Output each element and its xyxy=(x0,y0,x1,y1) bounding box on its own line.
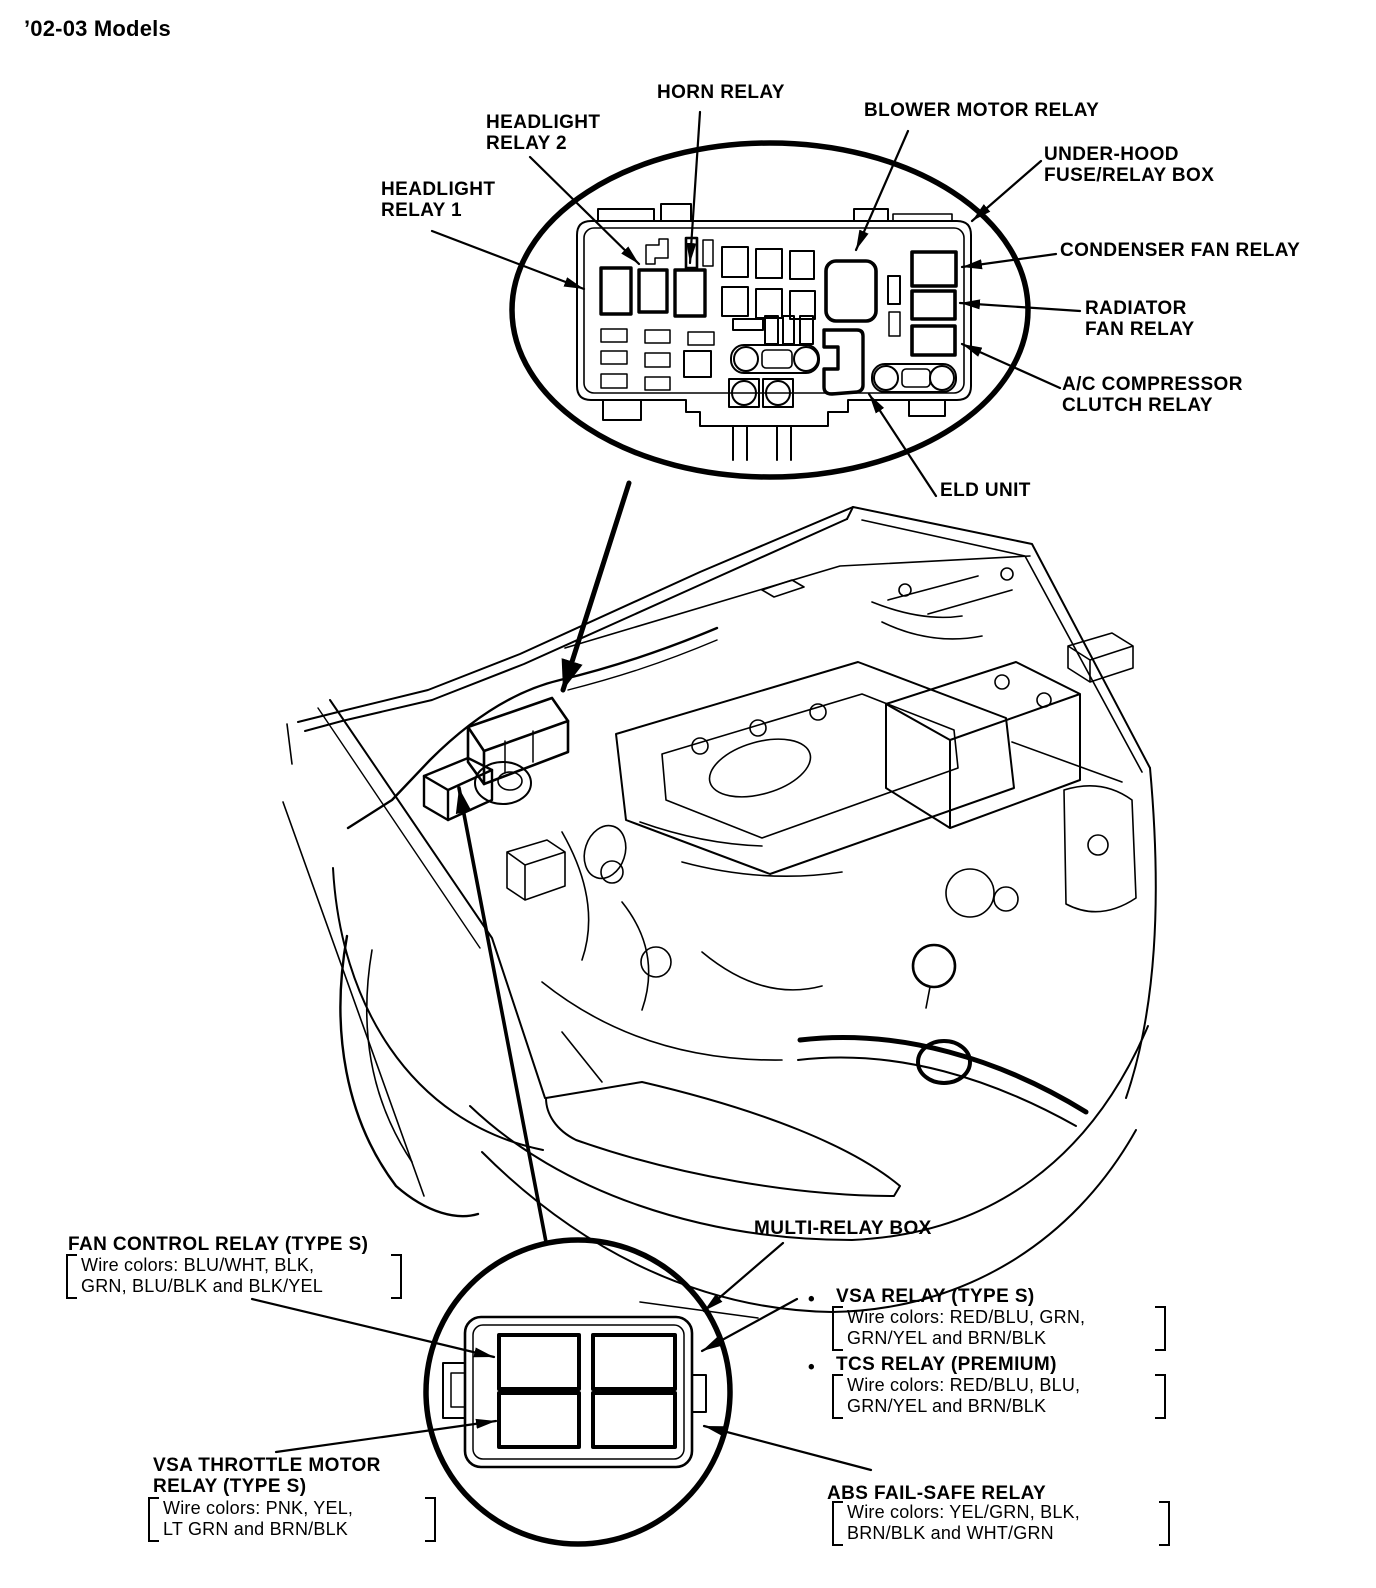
label-vsa-throttle-line1: VSA THROTTLE MOTOR xyxy=(153,1455,381,1476)
label-headlight-relay-2-line1: HEADLIGHT xyxy=(486,112,600,133)
vsa-relay-wire-line2: GRN/YEL and BRN/BLK xyxy=(847,1328,1153,1349)
label-under-hood-fuse-relay-box: UNDER-HOOD FUSE/RELAY BOX xyxy=(1044,144,1214,186)
bracket-right xyxy=(425,1497,436,1542)
label-fan-control-relay: FAN CONTROL RELAY (TYPE S) xyxy=(68,1234,368,1255)
bracket-right xyxy=(1159,1501,1170,1546)
label-under-hood-line2: FUSE/RELAY BOX xyxy=(1044,165,1214,186)
label-headlight-relay-1: HEADLIGHT RELAY 1 xyxy=(381,179,495,221)
label-ac-compressor-clutch-relay: A/C COMPRESSOR CLUTCH RELAY xyxy=(1062,374,1243,416)
vsa-relay-wire-line1: Wire colors: RED/BLU, GRN, xyxy=(847,1307,1153,1328)
vsa-throttle-wire-line2: LT GRN and BRN/BLK xyxy=(163,1519,423,1540)
tcs-relay-bullet: • xyxy=(808,1358,815,1377)
bracket-left xyxy=(832,1306,843,1351)
multi-relay-box-drawing xyxy=(426,1240,730,1544)
label-headlight-relay-2: HEADLIGHT RELAY 2 xyxy=(486,112,600,154)
tcs-relay-wire-line2: GRN/YEL and BRN/BLK xyxy=(847,1396,1153,1417)
label-blower-motor-relay: BLOWER MOTOR RELAY xyxy=(864,100,1099,121)
label-tcs-relay: TCS RELAY (PREMIUM) xyxy=(836,1354,1057,1375)
bracket-right xyxy=(1155,1306,1166,1351)
abs-wire-line1: Wire colors: YEL/GRN, BLK, xyxy=(847,1502,1157,1523)
label-radiator-line2: FAN RELAY xyxy=(1085,319,1195,340)
tcs-relay-wire-line1: Wire colors: RED/BLU, BLU, xyxy=(847,1375,1153,1396)
fuse-box-in-bay xyxy=(468,698,568,784)
label-headlight-relay-1-line2: RELAY 1 xyxy=(381,200,495,221)
abs-wire-line2: BRN/BLK and WHT/GRN xyxy=(847,1523,1157,1544)
label-ac-line1: A/C COMPRESSOR xyxy=(1062,374,1243,395)
bracket-right xyxy=(1155,1374,1166,1419)
under-hood-fuse-box-drawing xyxy=(512,143,1028,477)
bracket-left xyxy=(832,1374,843,1419)
label-ac-line2: CLUTCH RELAY xyxy=(1062,395,1243,416)
fan-control-wire-line1: Wire colors: BLU/WHT, BLK, xyxy=(81,1255,389,1276)
fan-control-wire-line2: GRN, BLU/BLK and BLK/YEL xyxy=(81,1276,389,1297)
label-eld-unit: ELD UNIT xyxy=(940,480,1031,501)
label-multi-relay-box: MULTI-RELAY BOX xyxy=(754,1218,932,1239)
locator-arrows xyxy=(459,483,629,1242)
bracket-right xyxy=(391,1254,402,1299)
label-radiator-line1: RADIATOR xyxy=(1085,298,1195,319)
label-under-hood-line1: UNDER-HOOD xyxy=(1044,144,1214,165)
label-headlight-relay-2-line2: RELAY 2 xyxy=(486,133,600,154)
bracket-left xyxy=(148,1497,159,1542)
abs-fail-safe-wire-colors: Wire colors: YEL/GRN, BLK, BRN/BLK and W… xyxy=(832,1501,1170,1546)
label-headlight-relay-1-line1: HEADLIGHT xyxy=(381,179,495,200)
label-vsa-throttle-motor-relay: VSA THROTTLE MOTOR RELAY (TYPE S) xyxy=(153,1455,381,1497)
label-horn-relay: HORN RELAY xyxy=(657,82,785,103)
label-condenser-fan-relay: CONDENSER FAN RELAY xyxy=(1060,240,1300,261)
page-title: ’02-03 Models xyxy=(24,18,171,39)
vsa-relay-wire-colors: Wire colors: RED/BLU, GRN, GRN/YEL and B… xyxy=(832,1306,1166,1351)
label-vsa-relay: VSA RELAY (TYPE S) xyxy=(836,1286,1035,1307)
bracket-left xyxy=(832,1501,843,1546)
engine-bay-illustration xyxy=(283,507,1156,1318)
diagram-line-art xyxy=(0,0,1376,1588)
service-manual-page: ’02-03 Models HORN RELAY HEADLIGHT RELAY… xyxy=(0,0,1376,1588)
label-vsa-throttle-line2: RELAY (TYPE S) xyxy=(153,1476,381,1497)
label-radiator-fan-relay: RADIATOR FAN RELAY xyxy=(1085,298,1195,340)
fan-control-wire-colors: Wire colors: BLU/WHT, BLK, GRN, BLU/BLK … xyxy=(66,1254,402,1299)
tcs-relay-wire-colors: Wire colors: RED/BLU, BLU, GRN/YEL and B… xyxy=(832,1374,1166,1419)
vsa-throttle-wire-line1: Wire colors: PNK, YEL, xyxy=(163,1498,423,1519)
vsa-throttle-wire-colors: Wire colors: PNK, YEL, LT GRN and BRN/BL… xyxy=(148,1497,436,1542)
bracket-left xyxy=(66,1254,77,1299)
vsa-relay-bullet: • xyxy=(808,1290,815,1309)
